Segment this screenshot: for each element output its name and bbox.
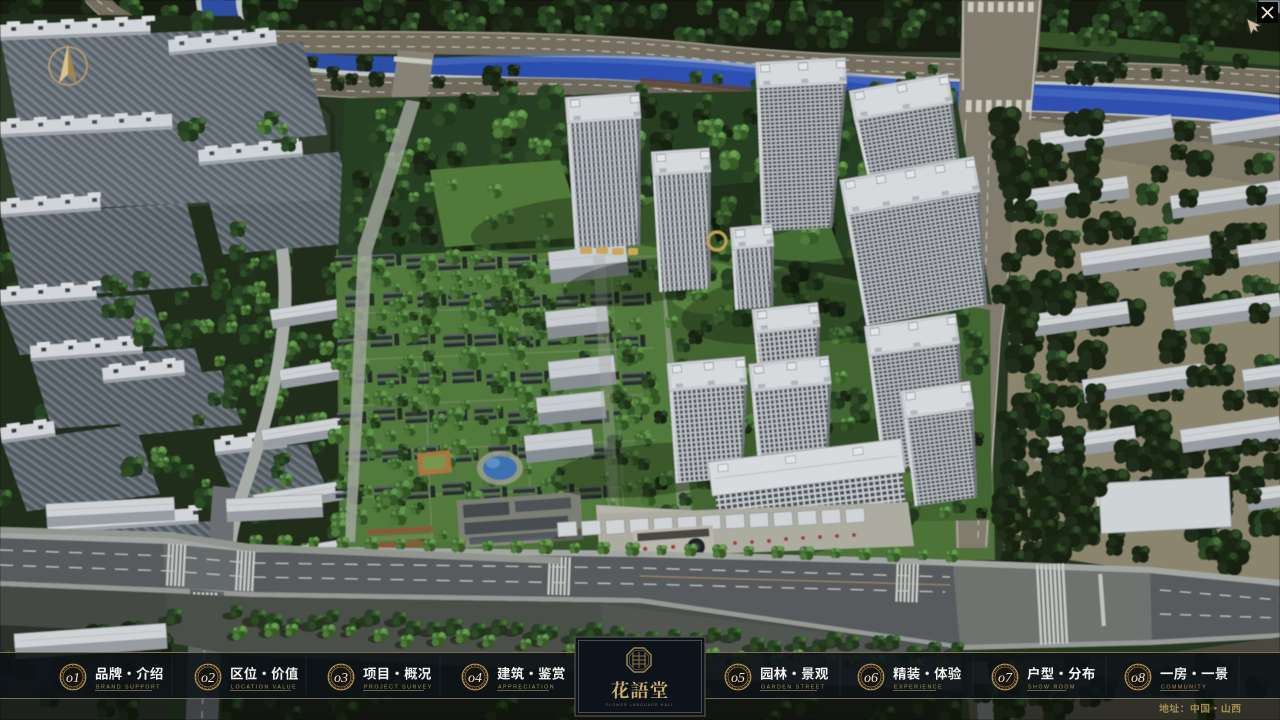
svg-text:BRAND SUPPORT: BRAND SUPPORT bbox=[96, 685, 161, 691]
svg-text:SHOW ROOM: SHOW ROOM bbox=[1028, 685, 1076, 691]
svg-text:LOCATION VALUE: LOCATION VALUE bbox=[231, 685, 297, 691]
svg-text:o2: o2 bbox=[201, 671, 215, 686]
svg-text:o8: o8 bbox=[1131, 671, 1145, 686]
svg-text:o6: o6 bbox=[864, 671, 878, 686]
svg-text:PROJECT SURVEY: PROJECT SURVEY bbox=[364, 685, 433, 691]
svg-text:o4: o4 bbox=[468, 671, 482, 686]
svg-text:FLOWER LANGUAGE HALL: FLOWER LANGUAGE HALL bbox=[606, 703, 674, 707]
svg-text:o1: o1 bbox=[66, 671, 80, 686]
svg-text:EXPERIENCE: EXPERIENCE bbox=[894, 685, 943, 691]
svg-text:o5: o5 bbox=[731, 671, 745, 686]
svg-text:o3: o3 bbox=[334, 671, 348, 686]
svg-text:APPRECIATION: APPRECIATION bbox=[498, 685, 555, 691]
svg-text:COMMUNITY: COMMUNITY bbox=[1161, 685, 1207, 691]
svg-text:o7: o7 bbox=[998, 671, 1013, 686]
svg-text:GARDEN STREET: GARDEN STREET bbox=[761, 685, 826, 691]
